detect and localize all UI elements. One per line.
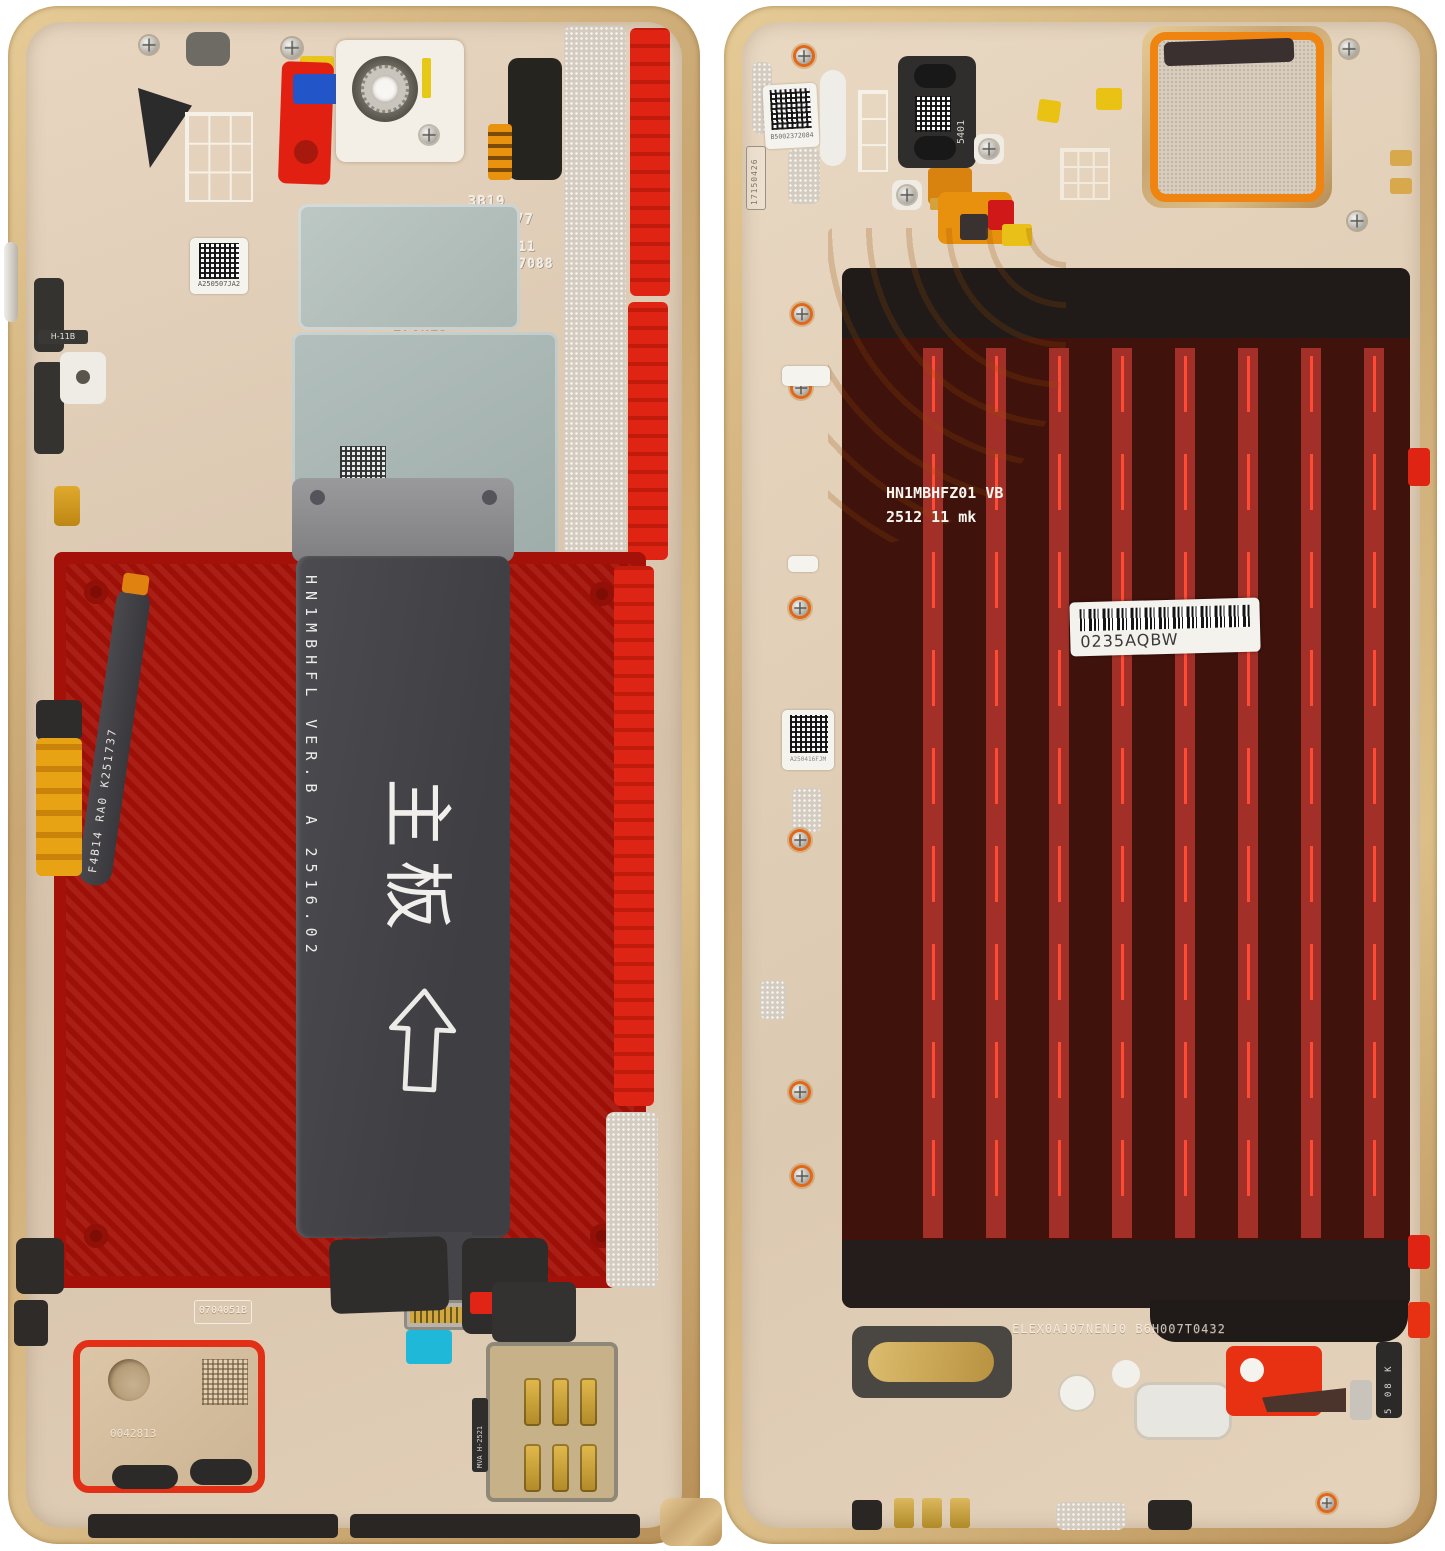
textured-rail-lower <box>606 1112 658 1288</box>
red-adhesive-strip-top <box>630 28 670 296</box>
sim-contact <box>524 1444 541 1492</box>
display-flex-code-line2: 2512 11 mk <box>886 508 976 526</box>
qr-code <box>770 88 812 130</box>
red-flex-corner <box>1226 1346 1322 1416</box>
mainboard-flex-code: HN1MBHFL VER.B A 2516.02 <box>302 575 320 1155</box>
emi-shield-small <box>298 204 520 330</box>
earpiece-pad-bottom <box>914 136 956 160</box>
qr-label: A250507JA2 <box>190 238 248 294</box>
sim-contact <box>524 1378 541 1426</box>
red-flex-hole <box>1240 1358 1264 1382</box>
speaker-etch-code: 0042813 <box>110 1427 156 1440</box>
screw <box>420 126 438 144</box>
sim-flex-code: MVA H-2521 <box>476 1402 484 1468</box>
gold-pad-right-edge <box>1390 150 1412 166</box>
screw <box>794 306 810 322</box>
cyan-sticker <box>406 1330 452 1364</box>
flex-arrow-up-icon <box>381 984 463 1096</box>
mainboard-flex-top-bracket <box>292 478 514 562</box>
yellow-tape <box>1037 99 1062 124</box>
speaker-etched-qr <box>202 1359 248 1405</box>
bay-corner-hole <box>84 1224 108 1248</box>
adhesive-pull-strip <box>1364 348 1384 1238</box>
screw <box>1320 1496 1334 1510</box>
bay-corner-hole <box>590 582 614 606</box>
barcode <box>1080 605 1251 631</box>
screw <box>1348 212 1366 230</box>
bottom-slot <box>1148 1500 1192 1530</box>
qr-label-text: B5002372084 <box>765 131 819 142</box>
corner-code-strip: 5 08 K <box>1376 1342 1402 1418</box>
adhesive-pull-strip <box>1049 348 1069 1238</box>
side-button-flex-code: H-11B <box>51 332 76 341</box>
qr-label: A250416FJM <box>782 710 834 770</box>
speaker-stamp-code: 0704051B <box>199 1305 247 1316</box>
red-wedge-small <box>1408 1302 1430 1338</box>
screw <box>792 600 808 616</box>
barcode-text: 0235AQBW <box>1080 630 1179 652</box>
small-label <box>788 556 818 572</box>
top-speaker-slot <box>1164 38 1295 67</box>
screw <box>792 1084 808 1100</box>
frame-stamp-box: 17150426 <box>746 146 766 210</box>
bottom-gold-contact <box>922 1498 942 1528</box>
earpiece-qr-code <box>915 96 951 132</box>
frame-stamp-code: 17150426 <box>750 149 759 205</box>
coil-flex-module <box>508 58 562 180</box>
red-adhesive-strip-mid <box>628 302 668 560</box>
frame-etched-text: ELEX0AJ07NENJ0 B6H007T0432 <box>1012 1322 1226 1336</box>
screw <box>898 186 916 204</box>
blue-sticker <box>293 74 339 104</box>
grey-bit <box>1350 1380 1372 1420</box>
white-rib <box>820 70 846 166</box>
dot-patch <box>792 788 822 832</box>
qr-code <box>199 243 239 279</box>
screw <box>796 48 812 64</box>
red-adhesive-strip-rail <box>614 566 654 1106</box>
adhesive-pull-strip <box>1112 348 1132 1238</box>
white-rounded-pad <box>1134 1382 1232 1440</box>
coil-flex-contacts <box>488 124 512 180</box>
corner-black-piece-2 <box>14 1300 48 1346</box>
screw <box>794 1168 810 1184</box>
side-button-pad-hole <box>76 370 90 384</box>
ladder-outline <box>858 90 888 172</box>
side-button <box>4 242 18 322</box>
qr-label-text: A250416FJM <box>782 756 834 763</box>
mainboard-flex-cn-label: 主板 <box>372 778 473 978</box>
speaker-hole <box>108 1359 150 1401</box>
bracket-hole <box>482 490 497 505</box>
earpiece-code: 5401 <box>956 92 967 144</box>
qr-label: B5002372084 <box>762 83 819 150</box>
red-tab-right-edge <box>1408 448 1430 486</box>
etched-grid <box>1060 148 1110 200</box>
sim-side-flex: MVA H-2521 <box>472 1398 488 1472</box>
bottom-frame-slot-1 <box>88 1514 338 1538</box>
adhesive-pull-strip <box>1175 348 1195 1238</box>
sim-contact <box>580 1444 597 1492</box>
camera-lens-hole <box>371 75 399 103</box>
sim-top-flex <box>492 1282 576 1342</box>
panel-bottom-band <box>842 1240 1410 1308</box>
left-orange-flex <box>36 738 82 876</box>
yellow-tape <box>1096 88 1122 110</box>
earpiece-module: 5401 <box>898 56 976 168</box>
speaker-pad-2 <box>190 1459 252 1485</box>
white-circle-pad-small <box>1112 1360 1140 1388</box>
dot-patch <box>1056 1502 1126 1530</box>
stamp-box: 0704051B <box>194 1300 252 1324</box>
bottom-connector-module <box>852 1326 1012 1398</box>
corner-strip-code: 5 08 K <box>1384 1346 1394 1414</box>
bracket-hole <box>310 490 325 505</box>
sim-contact <box>552 1378 569 1426</box>
barcode-label: 0235AQBW <box>1069 598 1260 657</box>
mesh-grid-plate <box>185 112 253 202</box>
bay-corner-hole <box>84 580 108 604</box>
textured-rail <box>564 26 626 562</box>
screw <box>792 832 808 848</box>
white-circle-pad <box>1058 1374 1096 1412</box>
qr-code <box>790 715 828 753</box>
qr-label-text: A250507JA2 <box>190 280 248 288</box>
screw <box>282 38 302 58</box>
camera-yellow-tape-2 <box>422 58 431 98</box>
red-flex-dark-wedge <box>1262 1388 1346 1412</box>
corner-black-piece-1 <box>16 1238 64 1294</box>
battery-flex-tip <box>121 572 150 595</box>
connector-gold-pad <box>868 1342 994 1382</box>
red-pull-tab-hole <box>294 140 318 164</box>
gold-contact-left <box>54 486 80 526</box>
bottom-slot <box>852 1500 882 1530</box>
speaker-pad-1 <box>112 1465 178 1489</box>
adhesive-pull-strip <box>1301 348 1321 1238</box>
small-label <box>782 366 830 386</box>
display-flex-code-line1: HN1MBHFZ01 VB <box>886 484 1003 502</box>
bottom-frame-slot-2 <box>350 1514 640 1538</box>
hinge-foot <box>660 1498 722 1546</box>
screw <box>140 36 158 54</box>
earpiece-pad-top <box>914 64 956 88</box>
dot-patch <box>760 980 786 1020</box>
photo-stage: H-11B A250507JA2 3B19 0457077 17/11 0457… <box>0 0 1445 1551</box>
gold-pad-right-edge <box>1390 178 1412 194</box>
dot-patch <box>788 148 820 204</box>
bottom-gold-contact <box>894 1498 914 1528</box>
dark-patch <box>186 32 230 66</box>
side-button-flex-label: H-11B <box>38 330 88 344</box>
screw <box>1340 40 1358 58</box>
bottom-gold-contact <box>950 1498 970 1528</box>
bottom-black-flex-1 <box>329 1236 450 1314</box>
red-tab-right-edge <box>1408 1235 1430 1269</box>
speaker-module: 0042813 <box>73 1340 265 1493</box>
adhesive-pull-strip <box>1238 348 1258 1238</box>
sim-contact <box>580 1378 597 1426</box>
sim-contact <box>552 1444 569 1492</box>
screw <box>980 140 998 158</box>
left-black-flex <box>36 700 82 740</box>
